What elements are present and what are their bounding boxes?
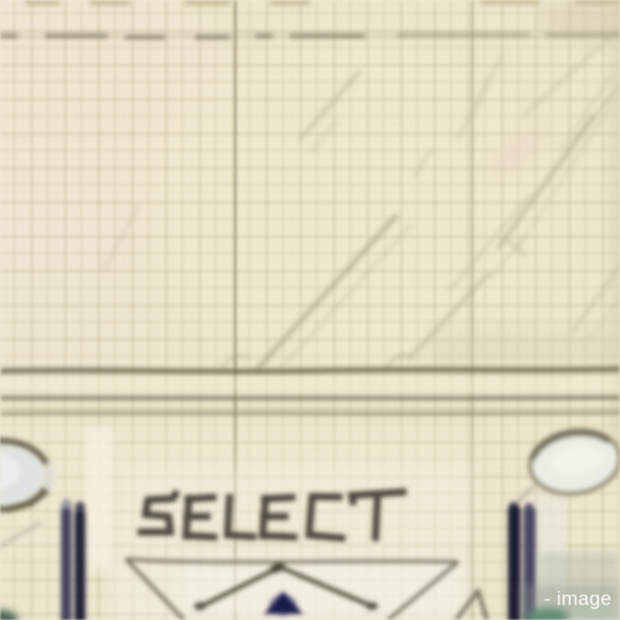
svg-text:- image: - image <box>544 588 612 610</box>
